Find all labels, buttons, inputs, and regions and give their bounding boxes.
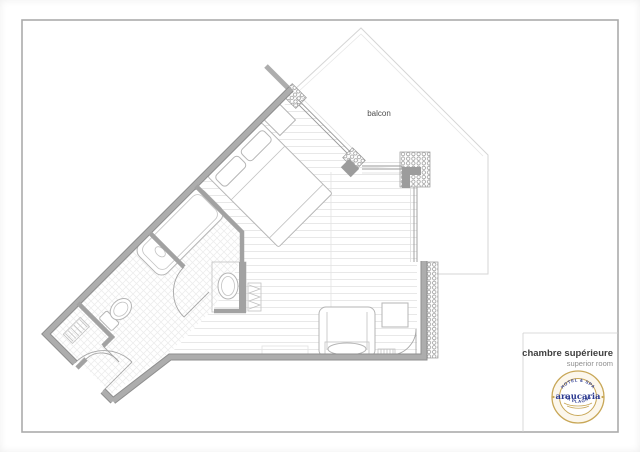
balcony-label: balcon [367, 109, 391, 118]
neighbour-wall-stub [266, 66, 290, 90]
logo-star-right [601, 396, 603, 398]
drawing-sheet: balcon [0, 0, 640, 452]
logo-name: araucaria [556, 391, 601, 401]
armchair [319, 307, 375, 357]
logo-star-left [552, 396, 554, 398]
vanity-partition [239, 262, 246, 312]
hotel-logo: HOTEL & SPA LA PLAGNE araucaria [552, 371, 604, 423]
desk [382, 303, 408, 327]
room-subtitle: superior room [567, 359, 613, 368]
room-title: chambre supérieure [522, 348, 613, 359]
floor-plan: balcon [0, 0, 640, 452]
title-block: chambre supérieure superior room HOTEL &… [522, 333, 618, 432]
